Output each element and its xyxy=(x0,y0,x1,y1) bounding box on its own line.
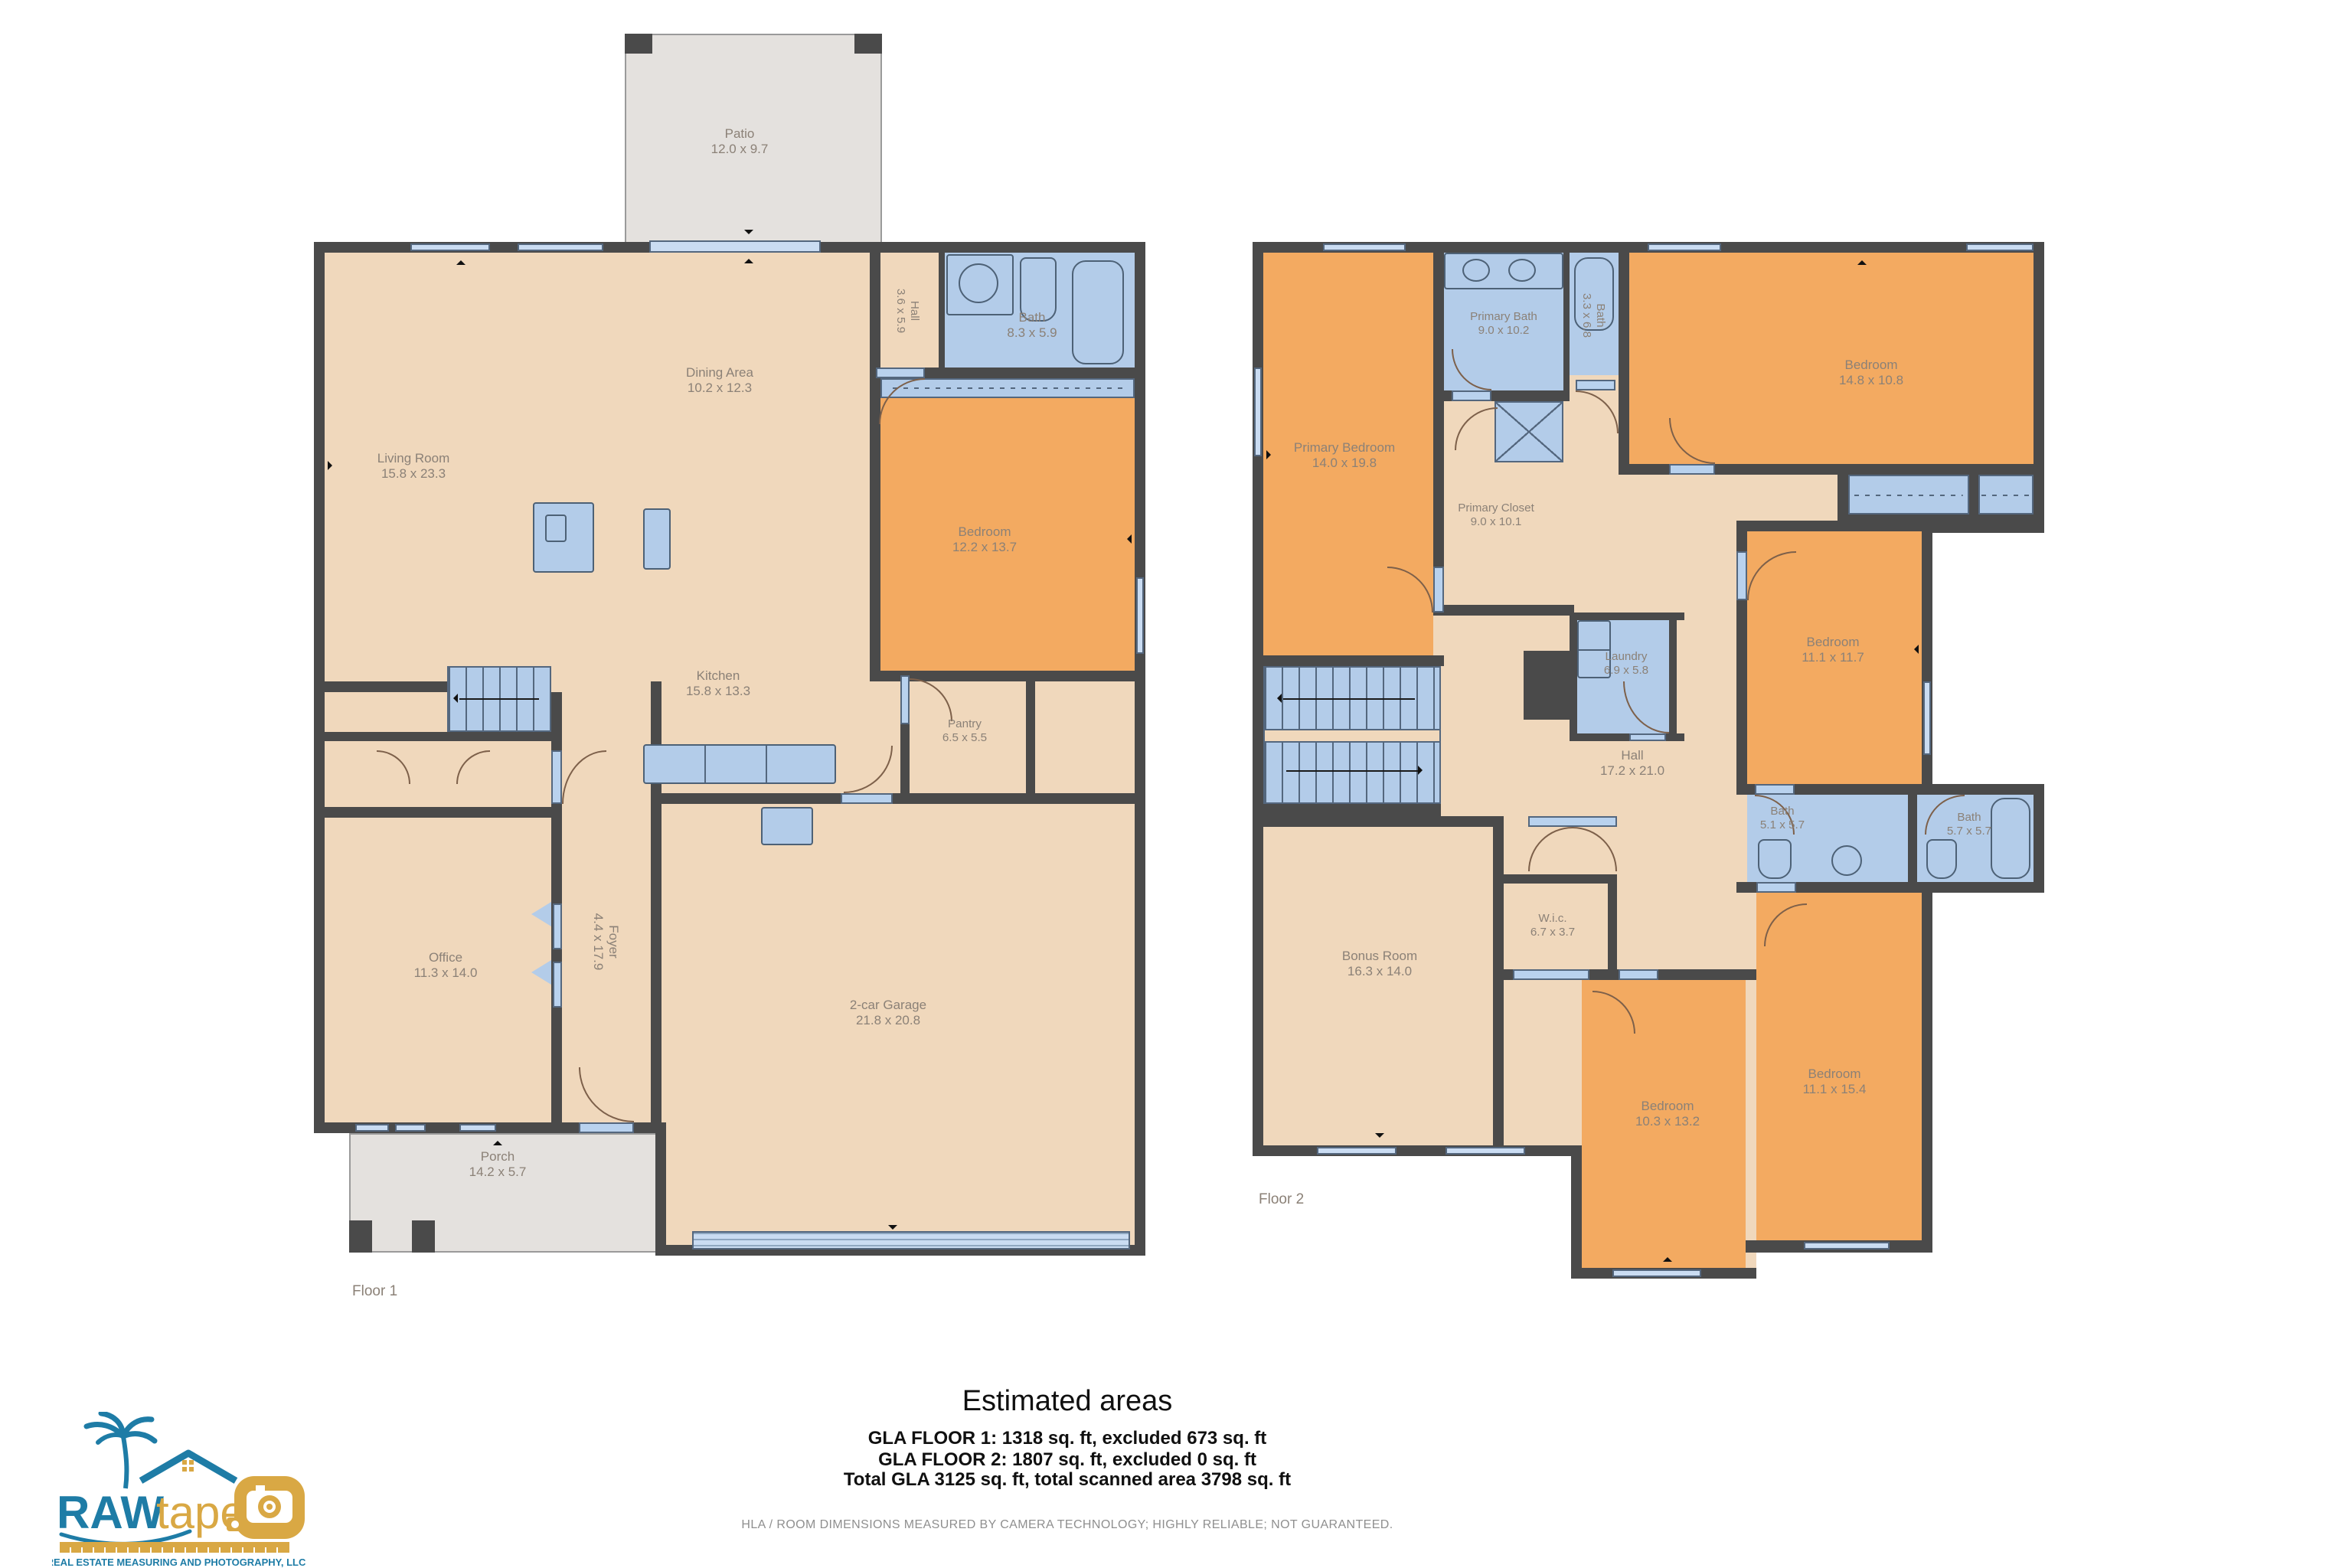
toilet xyxy=(1926,839,1957,879)
room-label-kitchen: Kitchen15.8 x 13.3 xyxy=(686,668,750,698)
sliding-door xyxy=(1619,969,1658,980)
door-sill xyxy=(1576,380,1615,390)
patio-post xyxy=(854,34,882,54)
summary-title: Estimated areas xyxy=(844,1386,1291,1419)
gla-floor1-line: GLA FLOOR 1: 1318 sq. ft, excluded 673 s… xyxy=(844,1429,1291,1449)
window xyxy=(410,243,490,251)
window xyxy=(395,1124,426,1132)
gla-total-line: Total GLA 3125 sq. ft, total scanned are… xyxy=(844,1470,1291,1491)
floor2-caption: Floor 2 xyxy=(1259,1191,1304,1208)
wall xyxy=(1263,655,1444,666)
bathtub xyxy=(1991,798,2030,879)
marker-icon xyxy=(1122,534,1132,544)
gla-floor2-line: GLA FLOOR 2: 1807 sq. ft, excluded 0 sq.… xyxy=(844,1449,1291,1470)
wall xyxy=(1571,1145,1582,1279)
sink xyxy=(1508,259,1536,282)
floorplan-canvas: Patio12.0 x 9.7 Living Room15.8 x 23.3 D… xyxy=(0,0,2352,1568)
room-label-office: Office11.3 x 14.0 xyxy=(414,949,478,980)
room-label-bedroom-bl: Bedroom10.3 x 13.2 xyxy=(1635,1098,1700,1129)
tape-camera-icon xyxy=(227,1476,305,1539)
marker-icon xyxy=(1909,645,1919,654)
porch-post xyxy=(412,1220,435,1253)
floorplan-page: Patio12.0 x 9.7 Living Room15.8 x 23.3 D… xyxy=(0,0,2352,1568)
door-sill xyxy=(876,367,925,378)
wall xyxy=(655,1133,666,1256)
stairs-arrow-icon xyxy=(1272,694,1282,703)
room-label-dining: Dining Area10.2 x 12.3 xyxy=(686,364,753,395)
wall xyxy=(2033,784,2044,893)
door-sill xyxy=(1669,464,1715,475)
garage-door xyxy=(692,1231,1130,1249)
window xyxy=(1648,243,1721,251)
marker-icon xyxy=(1375,1133,1384,1142)
chase-block xyxy=(1524,651,1577,720)
door-sill xyxy=(1736,551,1747,600)
french-door-panel xyxy=(553,962,562,1008)
wall xyxy=(1570,612,1684,620)
marker-icon xyxy=(328,461,337,470)
wall xyxy=(1135,242,1145,1256)
closet-rail xyxy=(1848,475,1969,514)
wall xyxy=(325,732,551,741)
window xyxy=(1445,1147,1525,1155)
door-sill xyxy=(1433,567,1444,612)
wall xyxy=(1493,874,1615,884)
room-label-pantry: Pantry6.5 x 5.5 xyxy=(942,717,987,744)
room-label-bath2: Bath5.7 x 5.7 xyxy=(1947,810,1991,838)
double-door-sill xyxy=(1528,816,1617,827)
island-sink xyxy=(545,514,567,542)
kitchen-fridge xyxy=(643,508,671,570)
house-roof-icon xyxy=(141,1453,236,1481)
window xyxy=(1804,1242,1890,1249)
ruler-icon xyxy=(60,1542,289,1553)
window xyxy=(1317,1147,1396,1155)
wall xyxy=(870,253,880,681)
stairs-direction-line xyxy=(1283,698,1415,700)
front-door-sill xyxy=(579,1122,634,1133)
sink xyxy=(1831,845,1862,876)
window xyxy=(1254,367,1262,456)
window xyxy=(518,243,603,251)
window xyxy=(1966,243,2033,251)
wall xyxy=(1736,521,1922,531)
marker-icon xyxy=(456,256,465,265)
estimated-areas-summary: Estimated areas GLA FLOOR 1: 1318 sq. ft… xyxy=(844,1386,1291,1491)
room-label-hall-f2: Hall17.2 x 21.0 xyxy=(1600,747,1664,778)
room-label-bedroom-mid: Bedroom11.1 x 11.7 xyxy=(1802,634,1864,665)
patio-post xyxy=(625,34,652,54)
window xyxy=(355,1124,389,1132)
bathtub xyxy=(1072,260,1124,364)
wall xyxy=(1669,612,1677,741)
marker-icon xyxy=(493,1136,502,1145)
water-heater xyxy=(761,807,813,845)
wall xyxy=(1908,795,1917,893)
room-label-bath-f1: Bath8.3 x 5.9 xyxy=(1007,309,1057,340)
wall xyxy=(939,253,945,367)
toilet xyxy=(1758,839,1792,879)
wall xyxy=(314,807,562,818)
wall xyxy=(1493,816,1504,1156)
porch-post xyxy=(349,1220,372,1253)
door-sill xyxy=(1756,882,1796,893)
counter-divider xyxy=(766,746,767,782)
logo: RAW tape REAL ESTATE MEASURING AND PHOTO… xyxy=(52,1412,309,1568)
marker-icon xyxy=(1857,256,1867,265)
room-label-bedroom-br: Bedroom11.1 x 15.4 xyxy=(1803,1066,1867,1096)
marker-icon xyxy=(1266,450,1276,459)
counter-divider xyxy=(704,746,706,782)
floor1-caption: Floor 1 xyxy=(352,1283,397,1300)
room-label-porch: Porch14.2 x 5.7 xyxy=(469,1148,527,1179)
door-sill xyxy=(551,750,562,804)
stairs-arrow-icon xyxy=(1418,766,1427,775)
stairs-landing xyxy=(1265,729,1439,743)
wall xyxy=(1563,253,1570,401)
wall xyxy=(1026,681,1035,793)
room-label-laundry: Laundry6.9 x 5.8 xyxy=(1604,649,1648,677)
room-label-patio: Patio12.0 x 9.7 xyxy=(711,126,769,156)
room-label-wic: W.i.c.6.7 x 3.7 xyxy=(1530,911,1575,939)
french-door-panel xyxy=(553,903,562,949)
door-sill xyxy=(900,675,910,724)
door-sill xyxy=(841,793,893,804)
room-label-garage: 2-car Garage21.8 x 20.8 xyxy=(850,997,926,1027)
window xyxy=(1612,1269,1701,1277)
marker-icon xyxy=(744,230,753,239)
window xyxy=(459,1124,496,1132)
door-sill xyxy=(1755,784,1795,795)
room-label-foyer: Foyer4.4 x 17.9 xyxy=(591,913,622,971)
room-label-living: Living Room15.8 x 23.3 xyxy=(377,450,450,481)
french-door-leaf-icon xyxy=(531,902,551,926)
wall xyxy=(1253,804,1441,816)
wall xyxy=(1608,874,1617,969)
bath-sink xyxy=(959,263,998,303)
room-label-bath1: Bath5.1 x 5.7 xyxy=(1760,804,1805,831)
marker-icon xyxy=(744,254,753,263)
door-sill xyxy=(1452,390,1491,401)
sliding-door xyxy=(1513,969,1589,980)
room-label-bedroom-f1: Bedroom12.2 x 13.7 xyxy=(952,524,1017,554)
room-label-bath-upper: Bath3.3 x 6.8 xyxy=(1580,293,1608,338)
wall xyxy=(1922,893,1932,1253)
room-label-bonus: Bonus Room16.3 x 14.0 xyxy=(1342,948,1417,978)
window xyxy=(1923,681,1931,755)
kitchen-counter xyxy=(643,744,836,784)
door-sill xyxy=(1629,733,1666,741)
wall xyxy=(1444,605,1574,616)
stairs-direction-line xyxy=(459,698,539,700)
stairs-arrow-icon xyxy=(449,694,458,703)
room-label-hall-f1: Hall3.6 x 5.9 xyxy=(894,289,922,333)
wall xyxy=(1253,816,1504,827)
sink xyxy=(1462,259,1490,282)
wall xyxy=(651,793,1135,804)
room-label-primary-closet: Primary Closet9.0 x 10.1 xyxy=(1458,501,1534,528)
wall xyxy=(1433,253,1444,616)
wall xyxy=(1570,733,1684,741)
wall xyxy=(1619,253,1629,475)
stairs-direction-line xyxy=(1286,770,1418,772)
window xyxy=(1136,577,1144,654)
wall xyxy=(2033,242,2044,533)
shower xyxy=(1494,401,1563,462)
closet-rail xyxy=(1978,475,2033,514)
french-door-leaf-icon xyxy=(531,960,551,985)
marker-icon xyxy=(888,1225,897,1234)
sliding-door xyxy=(649,240,821,253)
marker-icon xyxy=(1663,1253,1672,1262)
wall xyxy=(314,681,447,692)
room-label-bedroom-tr: Bedroom14.8 x 10.8 xyxy=(1839,357,1903,387)
room-label-primary-bedroom: Primary Bedroom14.0 x 19.8 xyxy=(1294,439,1395,470)
wall xyxy=(1253,1145,1582,1156)
disclaimer-text: HLA / ROOM DIMENSIONS MEASURED BY CAMERA… xyxy=(741,1517,1393,1531)
room-label-primary-bath: Primary Bath9.0 x 10.2 xyxy=(1470,309,1537,337)
logo-tagline: REAL ESTATE MEASURING AND PHOTOGRAPHY, L… xyxy=(52,1557,306,1568)
window xyxy=(1323,243,1406,251)
logo-brand-primary: RAW xyxy=(57,1487,164,1538)
